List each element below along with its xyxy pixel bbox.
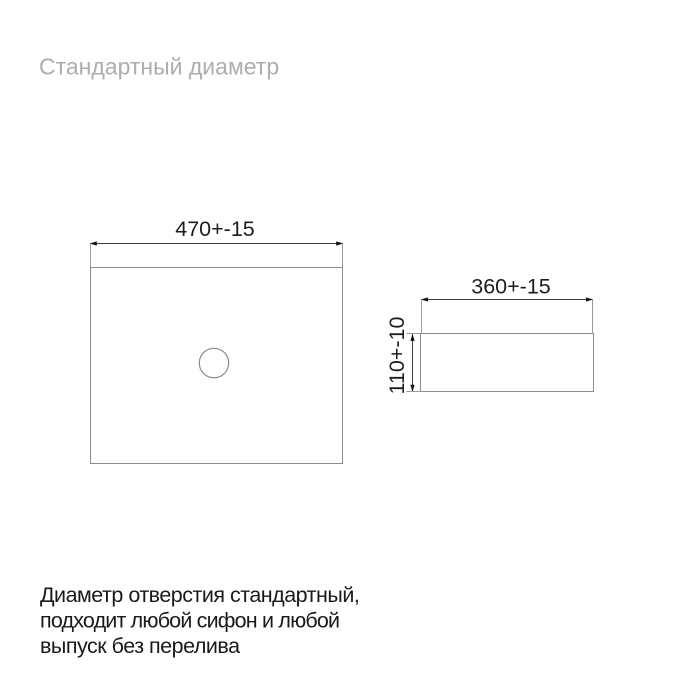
svg-text:Стандартный диаметр: Стандартный диаметр [39,54,279,80]
svg-text:110+-10: 110+-10 [385,317,409,395]
svg-text:360+-15: 360+-15 [471,275,551,299]
svg-text:выпуск без перелива: выпуск без перелива [40,634,240,658]
svg-text:Диаметр отверстия стандартный,: Диаметр отверстия стандартный, [40,583,359,607]
svg-text:подходит любой сифон и любой: подходит любой сифон и любой [40,609,339,633]
svg-text:470+-15: 470+-15 [175,217,255,241]
